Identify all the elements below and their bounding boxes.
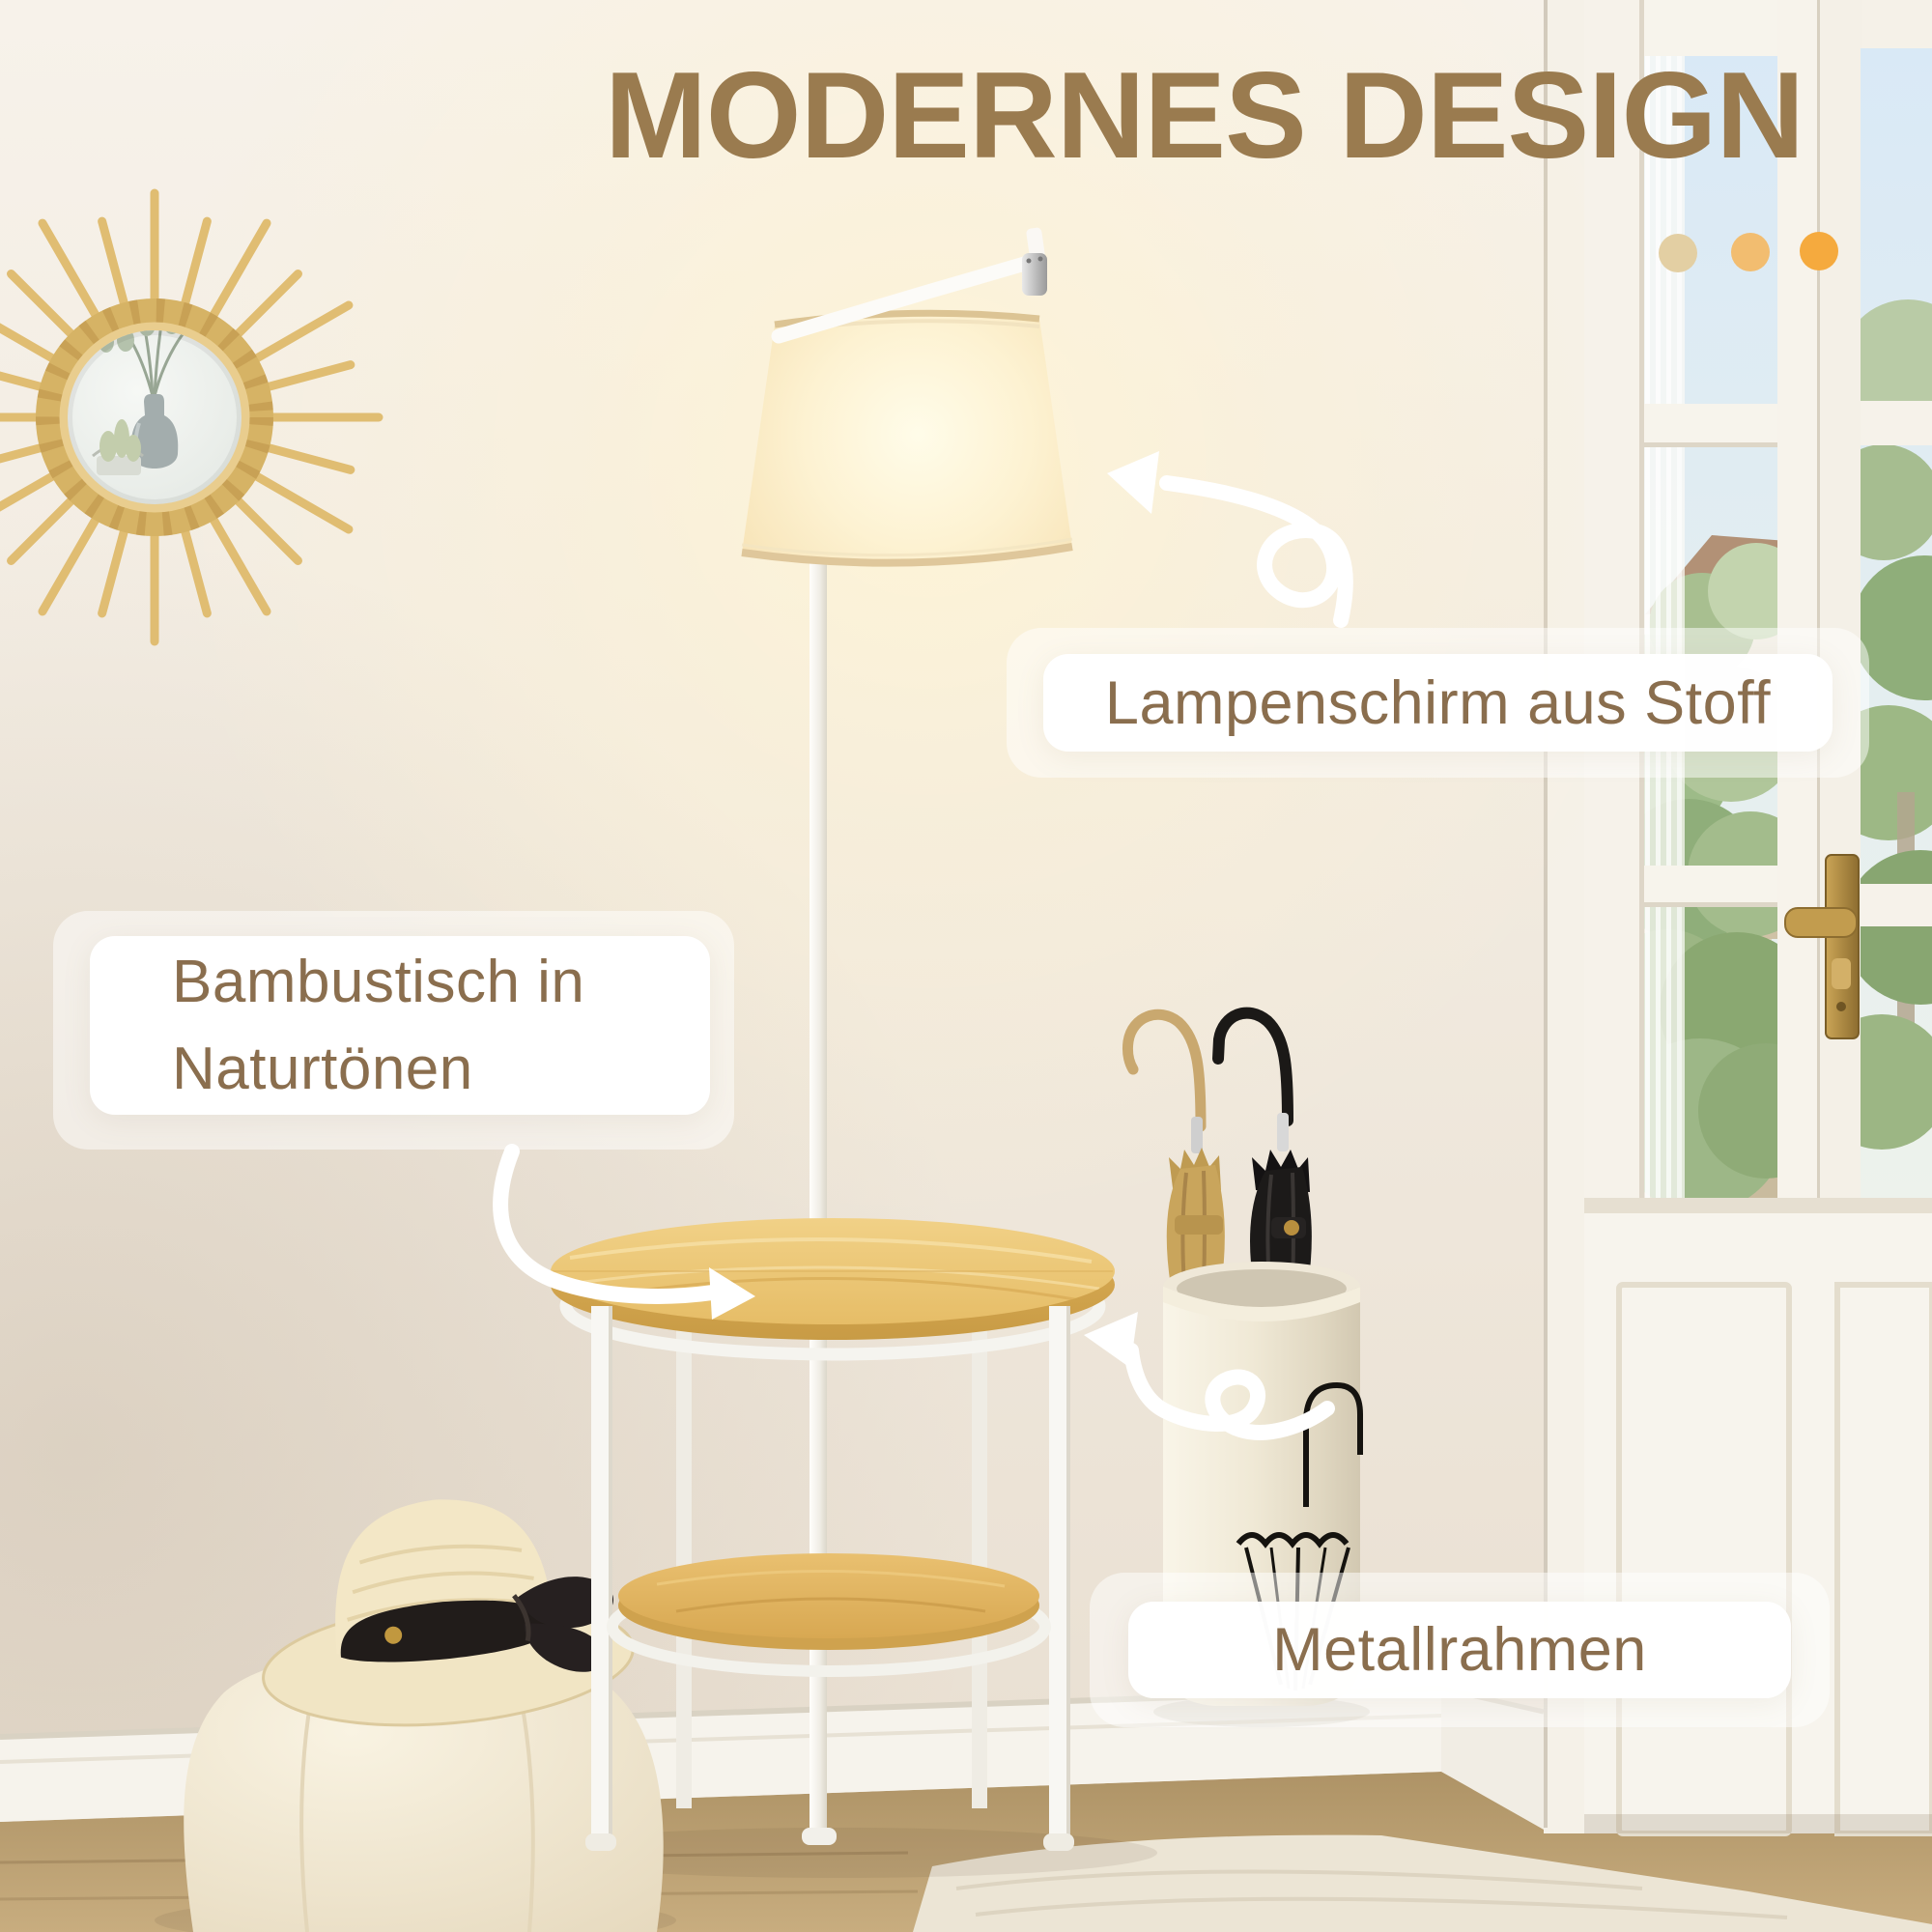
shade-fitting	[1022, 253, 1047, 296]
callout-bamboo-table-box: Bambustisch in Naturtönen	[90, 936, 710, 1115]
table-leg-back-left	[676, 1281, 692, 1808]
callout-metal-frame: Metallrahmen	[1090, 1573, 1830, 1727]
french-door	[1544, 0, 1932, 1833]
callout-lampshade: Lampenschirm aus Stoff	[1007, 628, 1869, 778]
accent-dot-1	[1659, 234, 1697, 272]
accent-dot-2	[1731, 233, 1770, 271]
table-leg-back-right	[972, 1281, 987, 1808]
table-shelf	[618, 1553, 1039, 1638]
page-title: MODERNES DESIGN	[605, 44, 1804, 185]
callout-bamboo-line2: Naturtönen	[172, 1026, 584, 1113]
callout-bamboo-table-text: Bambustisch in Naturtönen	[172, 939, 584, 1113]
callout-metal-frame-text: Metallrahmen	[1272, 1615, 1647, 1685]
callout-bamboo-table: Bambustisch in Naturtönen	[53, 911, 734, 1150]
callout-metal-frame-box: Metallrahmen	[1128, 1602, 1791, 1698]
callout-lampshade-box: Lampenschirm aus Stoff	[1043, 654, 1833, 752]
callout-bamboo-line1: Bambustisch in	[172, 939, 584, 1026]
fabric-lampshade	[742, 313, 1072, 562]
callout-lampshade-text: Lampenschirm aus Stoff	[1105, 668, 1771, 738]
product-marketing-image: MODERNES DESIGN Lampenschirm aus Stoff B…	[0, 0, 1932, 1932]
accent-dot-3	[1800, 232, 1838, 270]
